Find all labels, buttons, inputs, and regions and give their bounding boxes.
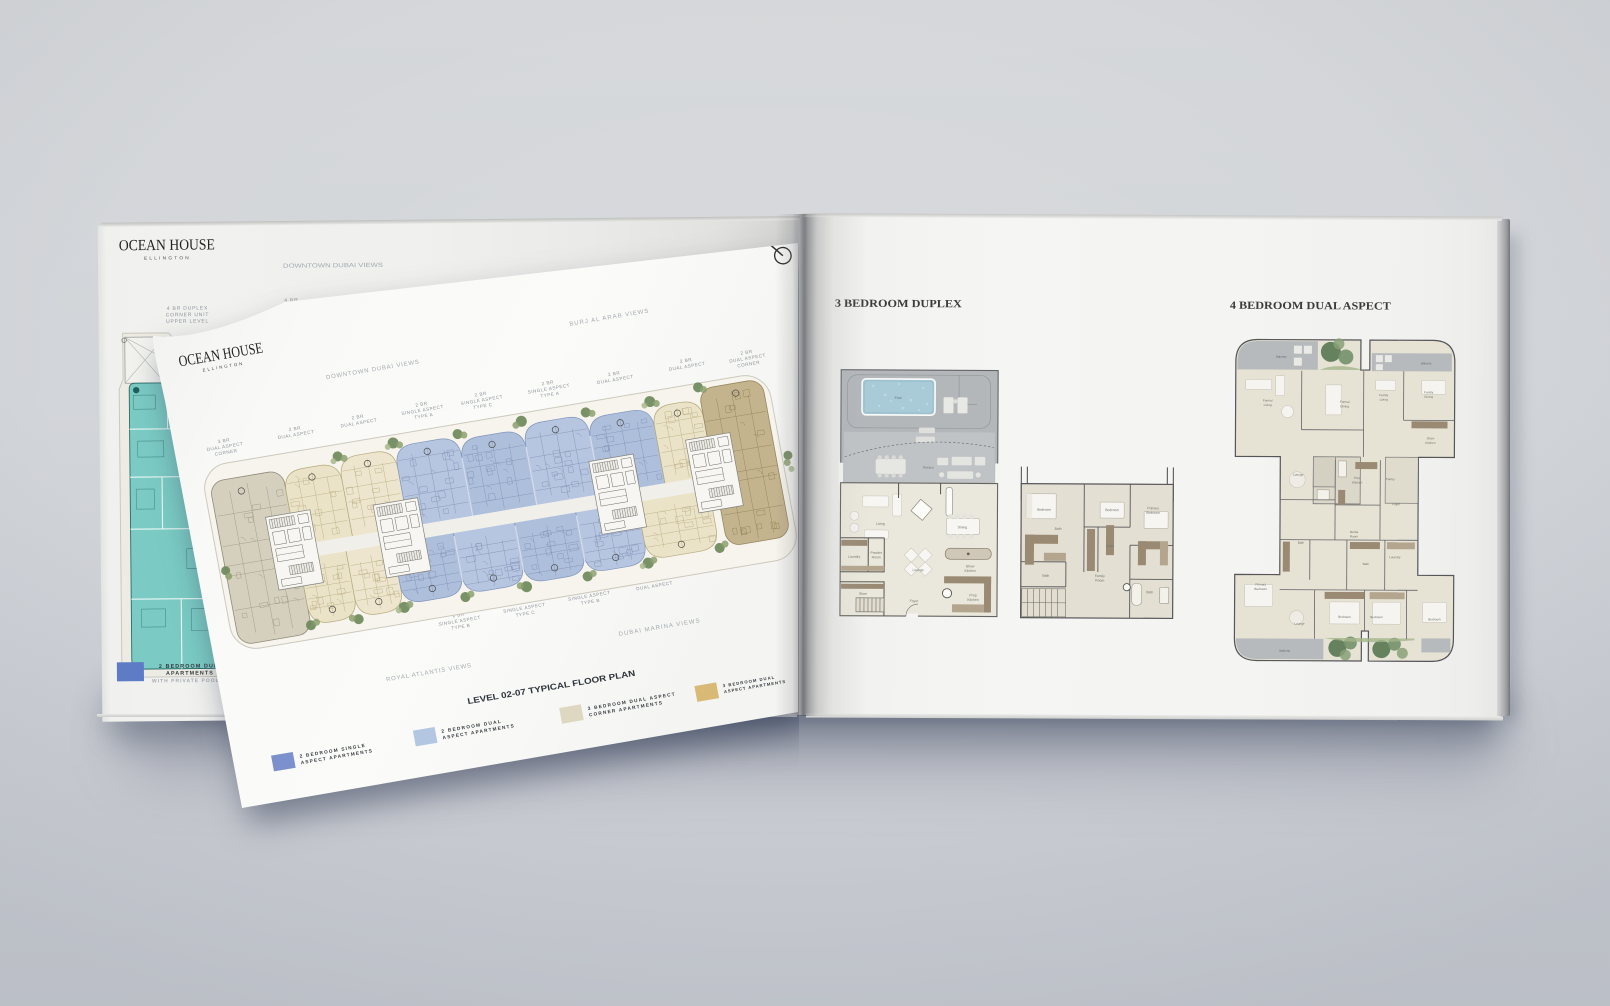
svg-text:Laundry: Laundry [1389,555,1401,559]
svg-text:Formal: Formal [1263,399,1273,403]
svg-text:Show: Show [966,564,975,568]
svg-text:Bath: Bath [1146,590,1153,594]
svg-text:Family: Family [1379,393,1389,397]
svg-text:Dining: Dining [958,525,968,529]
svg-text:Bedroom: Bedroom [1428,617,1441,621]
svg-text:Bath: Bath [1055,527,1062,531]
svg-text:Foyer: Foyer [910,599,920,603]
svg-text:Living: Living [1380,398,1388,402]
svg-text:Bath: Bath [1042,574,1049,578]
svg-text:Lounge: Lounge [912,568,923,572]
svg-text:Formal: Formal [1340,400,1350,404]
svg-text:Room: Room [872,555,881,559]
svg-text:Room: Room [1350,534,1359,538]
svg-text:Bedroom: Bedroom [1254,587,1267,591]
svg-text:Pantry: Pantry [1386,477,1395,481]
svg-text:Bedroom: Bedroom [1338,615,1351,619]
svg-text:Foyer: Foyer [1392,502,1400,506]
svg-text:Lounge: Lounge [1294,622,1305,626]
svg-text:Prep: Prep [969,593,976,597]
svg-text:Family: Family [1424,390,1434,394]
svg-text:Room: Room [1095,579,1104,583]
svg-text:Living: Living [1264,403,1272,407]
svg-text:4 BEDROOM DUAL ASPECT: 4 BEDROOM DUAL ASPECT [1230,300,1392,313]
svg-text:Bedroom: Bedroom [1037,508,1051,512]
svg-text:Bedroom: Bedroom [1370,615,1383,619]
svg-text:Balcony: Balcony [1276,355,1287,359]
svg-text:Powder: Powder [870,551,882,555]
svg-text:Kitchen: Kitchen [964,569,975,573]
svg-text:Kitchen: Kitchen [967,598,978,602]
svg-text:Kitchen: Kitchen [1352,480,1363,484]
svg-text:Dining: Dining [1340,404,1349,408]
svg-text:Bath: Bath [1298,541,1305,545]
svg-text:Bath: Bath [1363,562,1370,566]
svg-text:Balcony: Balcony [1279,649,1290,653]
svg-text:Kitchen: Kitchen [1425,441,1436,445]
svg-text:Terrace: Terrace [923,466,934,470]
svg-text:N: N [762,241,766,246]
svg-text:Show: Show [1427,436,1436,440]
svg-text:Lounge: Lounge [1293,473,1304,477]
svg-text:Pool: Pool [895,396,902,400]
svg-text:Primary: Primary [1255,582,1266,586]
svg-text:Primary: Primary [1147,506,1159,510]
svg-text:Living: Living [876,522,885,526]
svg-text:Dining: Dining [1424,395,1433,399]
svg-text:Media: Media [1350,530,1359,534]
svg-text:Bedroom: Bedroom [1146,511,1160,515]
svg-text:Bath: Bath [1106,544,1113,548]
svg-text:Prep: Prep [1354,476,1361,480]
svg-text:Family: Family [1095,574,1105,578]
svg-text:Bedroom: Bedroom [1105,508,1119,512]
svg-text:Balcony: Balcony [1421,361,1432,365]
